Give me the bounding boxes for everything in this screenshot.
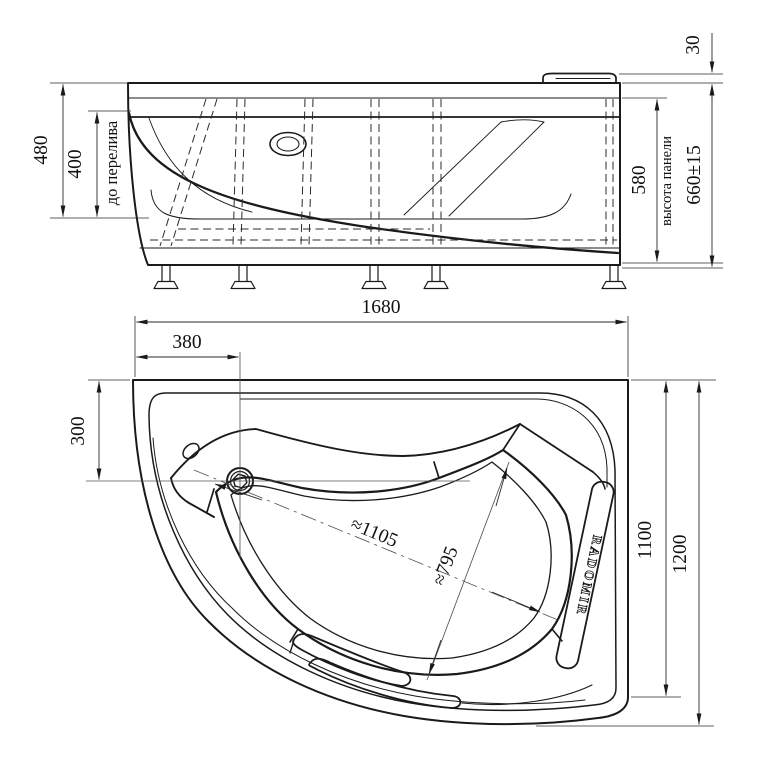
foot — [362, 265, 386, 289]
plan-headrest-flank-line — [593, 472, 605, 489]
plan-overflow-hole — [180, 440, 202, 461]
dim-text-1680: 1680 — [362, 297, 401, 318]
plan-bowl-outer-edge — [216, 450, 572, 675]
side-interior-bottom — [151, 190, 571, 219]
side-feet — [154, 265, 626, 289]
dim-text-1100: 1100 — [635, 521, 656, 559]
brand-text: RADOMIR — [573, 534, 605, 618]
dim-text-480: 480 — [31, 135, 52, 164]
dim-text-300: 300 — [68, 416, 89, 445]
side-view: 480 400 до перелива 580 высота панели 66… — [31, 33, 723, 289]
foot — [424, 265, 448, 289]
dim-text-380: 380 — [172, 332, 201, 353]
side-interior-diagonal-1 — [404, 122, 501, 215]
side-hidden-frame-dashed — [150, 99, 617, 246]
plan-corner-facet-edge — [520, 424, 593, 472]
side-panel-outline — [128, 83, 620, 265]
dim-text-795: ≈795 — [429, 544, 463, 589]
foot — [602, 265, 626, 289]
side-bowl-profile-curve — [129, 113, 618, 253]
plan-backrest-band-top-edge — [171, 424, 520, 478]
plan-view: RADOMIR ≈1105 ≈795 — [68, 297, 716, 726]
plan-headrest-pad: RADOMIR — [554, 480, 615, 670]
side-overflow-hole-outer — [270, 133, 306, 156]
plan-inner-rim-second-line-top — [240, 399, 607, 487]
bathtub-technical-drawing: 480 400 до перелива 580 высота панели 66… — [0, 0, 768, 768]
side-overflow-hole-inner — [277, 137, 299, 151]
dim-text-400: 400 — [65, 149, 86, 178]
foot — [231, 265, 255, 289]
plan-outer-boundary — [133, 380, 628, 724]
side-interior-diagonal-2 — [449, 122, 544, 216]
dim-text-1200: 1200 — [670, 535, 691, 574]
dim-text-1105: ≈1105 — [347, 514, 400, 552]
side-interior-far-rim-arc — [501, 120, 544, 122]
plan-bottom-step-pads — [290, 634, 592, 708]
dim-text-660: 660±15 — [684, 145, 705, 204]
plan-bowl-inner-seat-edge — [231, 462, 551, 659]
dim-arrow-795-bottom — [429, 640, 441, 674]
dim-arrow-1105-right — [492, 592, 540, 612]
dim-text-30: 30 — [683, 35, 704, 55]
label-overflow: до перелива — [102, 120, 121, 205]
foot — [154, 265, 178, 289]
drawing-svg: 480 400 до перелива 580 высота панели 66… — [0, 0, 768, 768]
label-panel-height: высота панели — [659, 136, 675, 226]
dim-arrow-795-top — [496, 468, 507, 506]
dim-text-580: 580 — [629, 165, 650, 194]
